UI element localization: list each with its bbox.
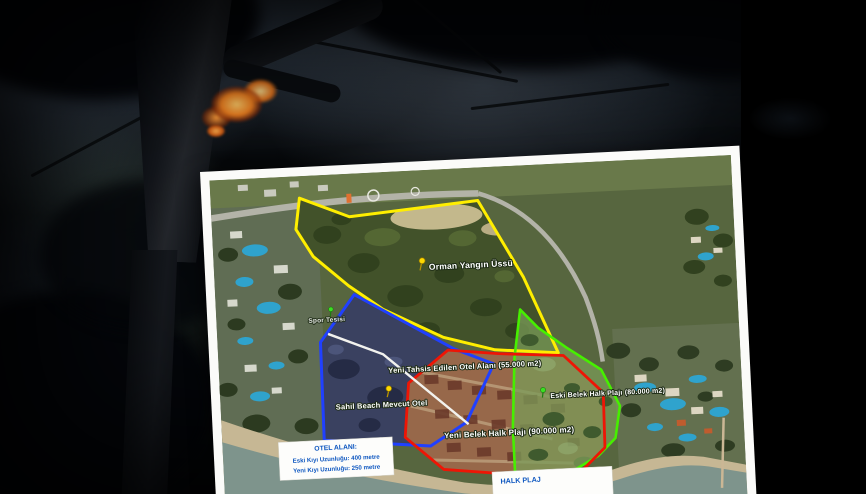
satellite-map-inset: Orman Yangın Üssü Spor Tesisi Sahil Beac… (200, 146, 757, 494)
news-composite-image: Orman Yangın Üssü Spor Tesisi Sahil Beac… (0, 0, 866, 494)
satellite-map-image: Orman Yangın Üssü Spor Tesisi Sahil Beac… (209, 155, 747, 494)
hotel-info-box: OTEL ALANI: Eski Kıyı Uzunluğu: 400 metr… (278, 437, 394, 481)
right-resort-area (605, 323, 746, 474)
road-feature (346, 194, 351, 203)
dark-right-area (741, 0, 866, 494)
fire-ember (196, 118, 236, 144)
